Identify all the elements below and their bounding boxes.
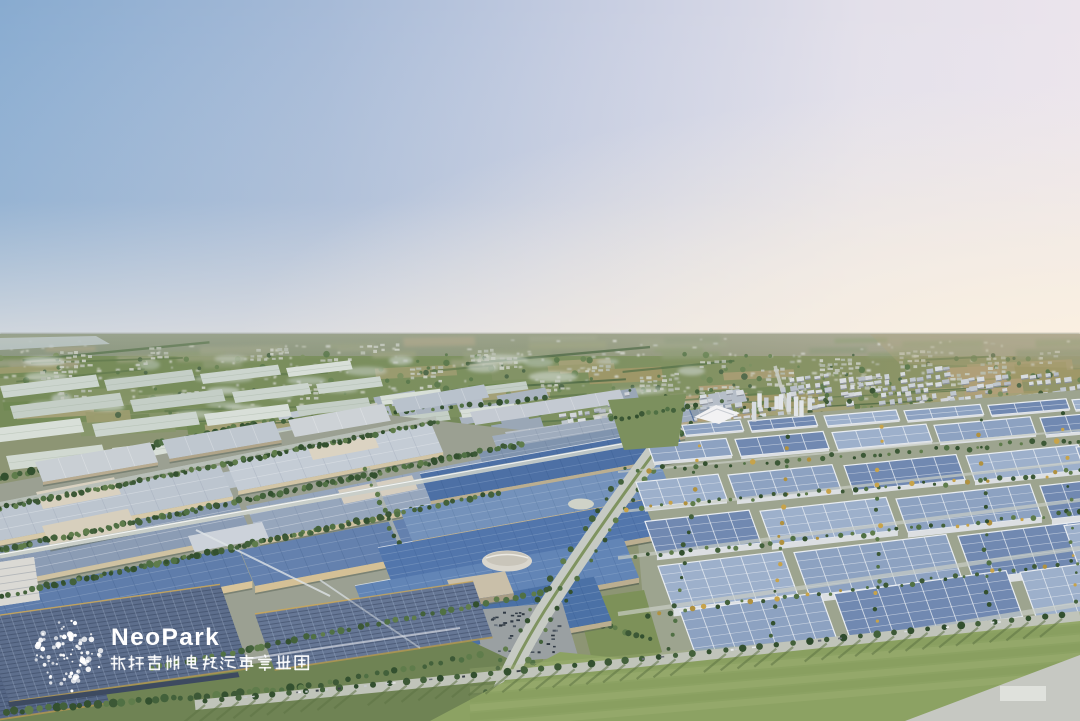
svg-text:NeoPark: NeoPark bbox=[111, 624, 220, 651]
